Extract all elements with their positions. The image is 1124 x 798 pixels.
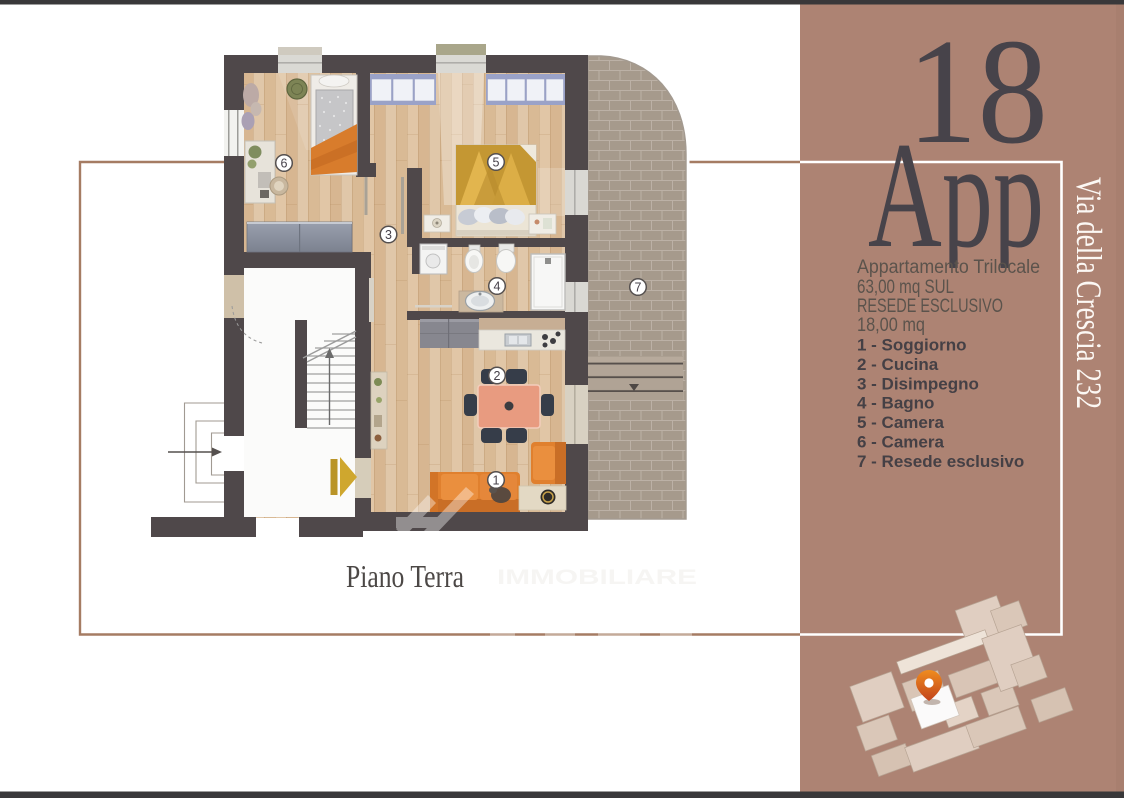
svg-text:6: 6 (281, 157, 288, 171)
svg-text:3 - Disimpegno: 3 - Disimpegno (857, 374, 979, 393)
svg-text:2 - Cucina: 2 - Cucina (857, 355, 939, 374)
svg-text:2: 2 (494, 369, 501, 383)
svg-text:3: 3 (385, 228, 392, 242)
svg-text:App: App (868, 111, 1044, 279)
svg-text:18,00 mq: 18,00 mq (857, 315, 925, 336)
svg-text:Piano Terra: Piano Terra (346, 558, 464, 594)
svg-text:1: 1 (493, 474, 500, 488)
svg-text:7 - Resede esclusivo: 7 - Resede esclusivo (857, 452, 1024, 471)
svg-text:4 - Bagno: 4 - Bagno (857, 394, 934, 413)
svg-text:6 - Camera: 6 - Camera (857, 432, 944, 451)
svg-text:IMMOBILIARE: IMMOBILIARE (497, 566, 697, 589)
svg-text:5: 5 (493, 156, 500, 170)
svg-text:RESEDE ESCLUSIVO: RESEDE ESCLUSIVO (857, 296, 1003, 317)
svg-text:1 - Soggiorno: 1 - Soggiorno (857, 336, 967, 355)
svg-text:63,00 mq SUL: 63,00 mq SUL (857, 277, 954, 298)
svg-text:Appartamento Trilocale: Appartamento Trilocale (857, 257, 1040, 278)
svg-text:5 - Camera: 5 - Camera (857, 413, 944, 432)
svg-text:4: 4 (494, 280, 501, 294)
svg-text:Via della Crescia 232: Via della Crescia 232 (1069, 177, 1109, 409)
svg-text:7: 7 (635, 281, 642, 295)
